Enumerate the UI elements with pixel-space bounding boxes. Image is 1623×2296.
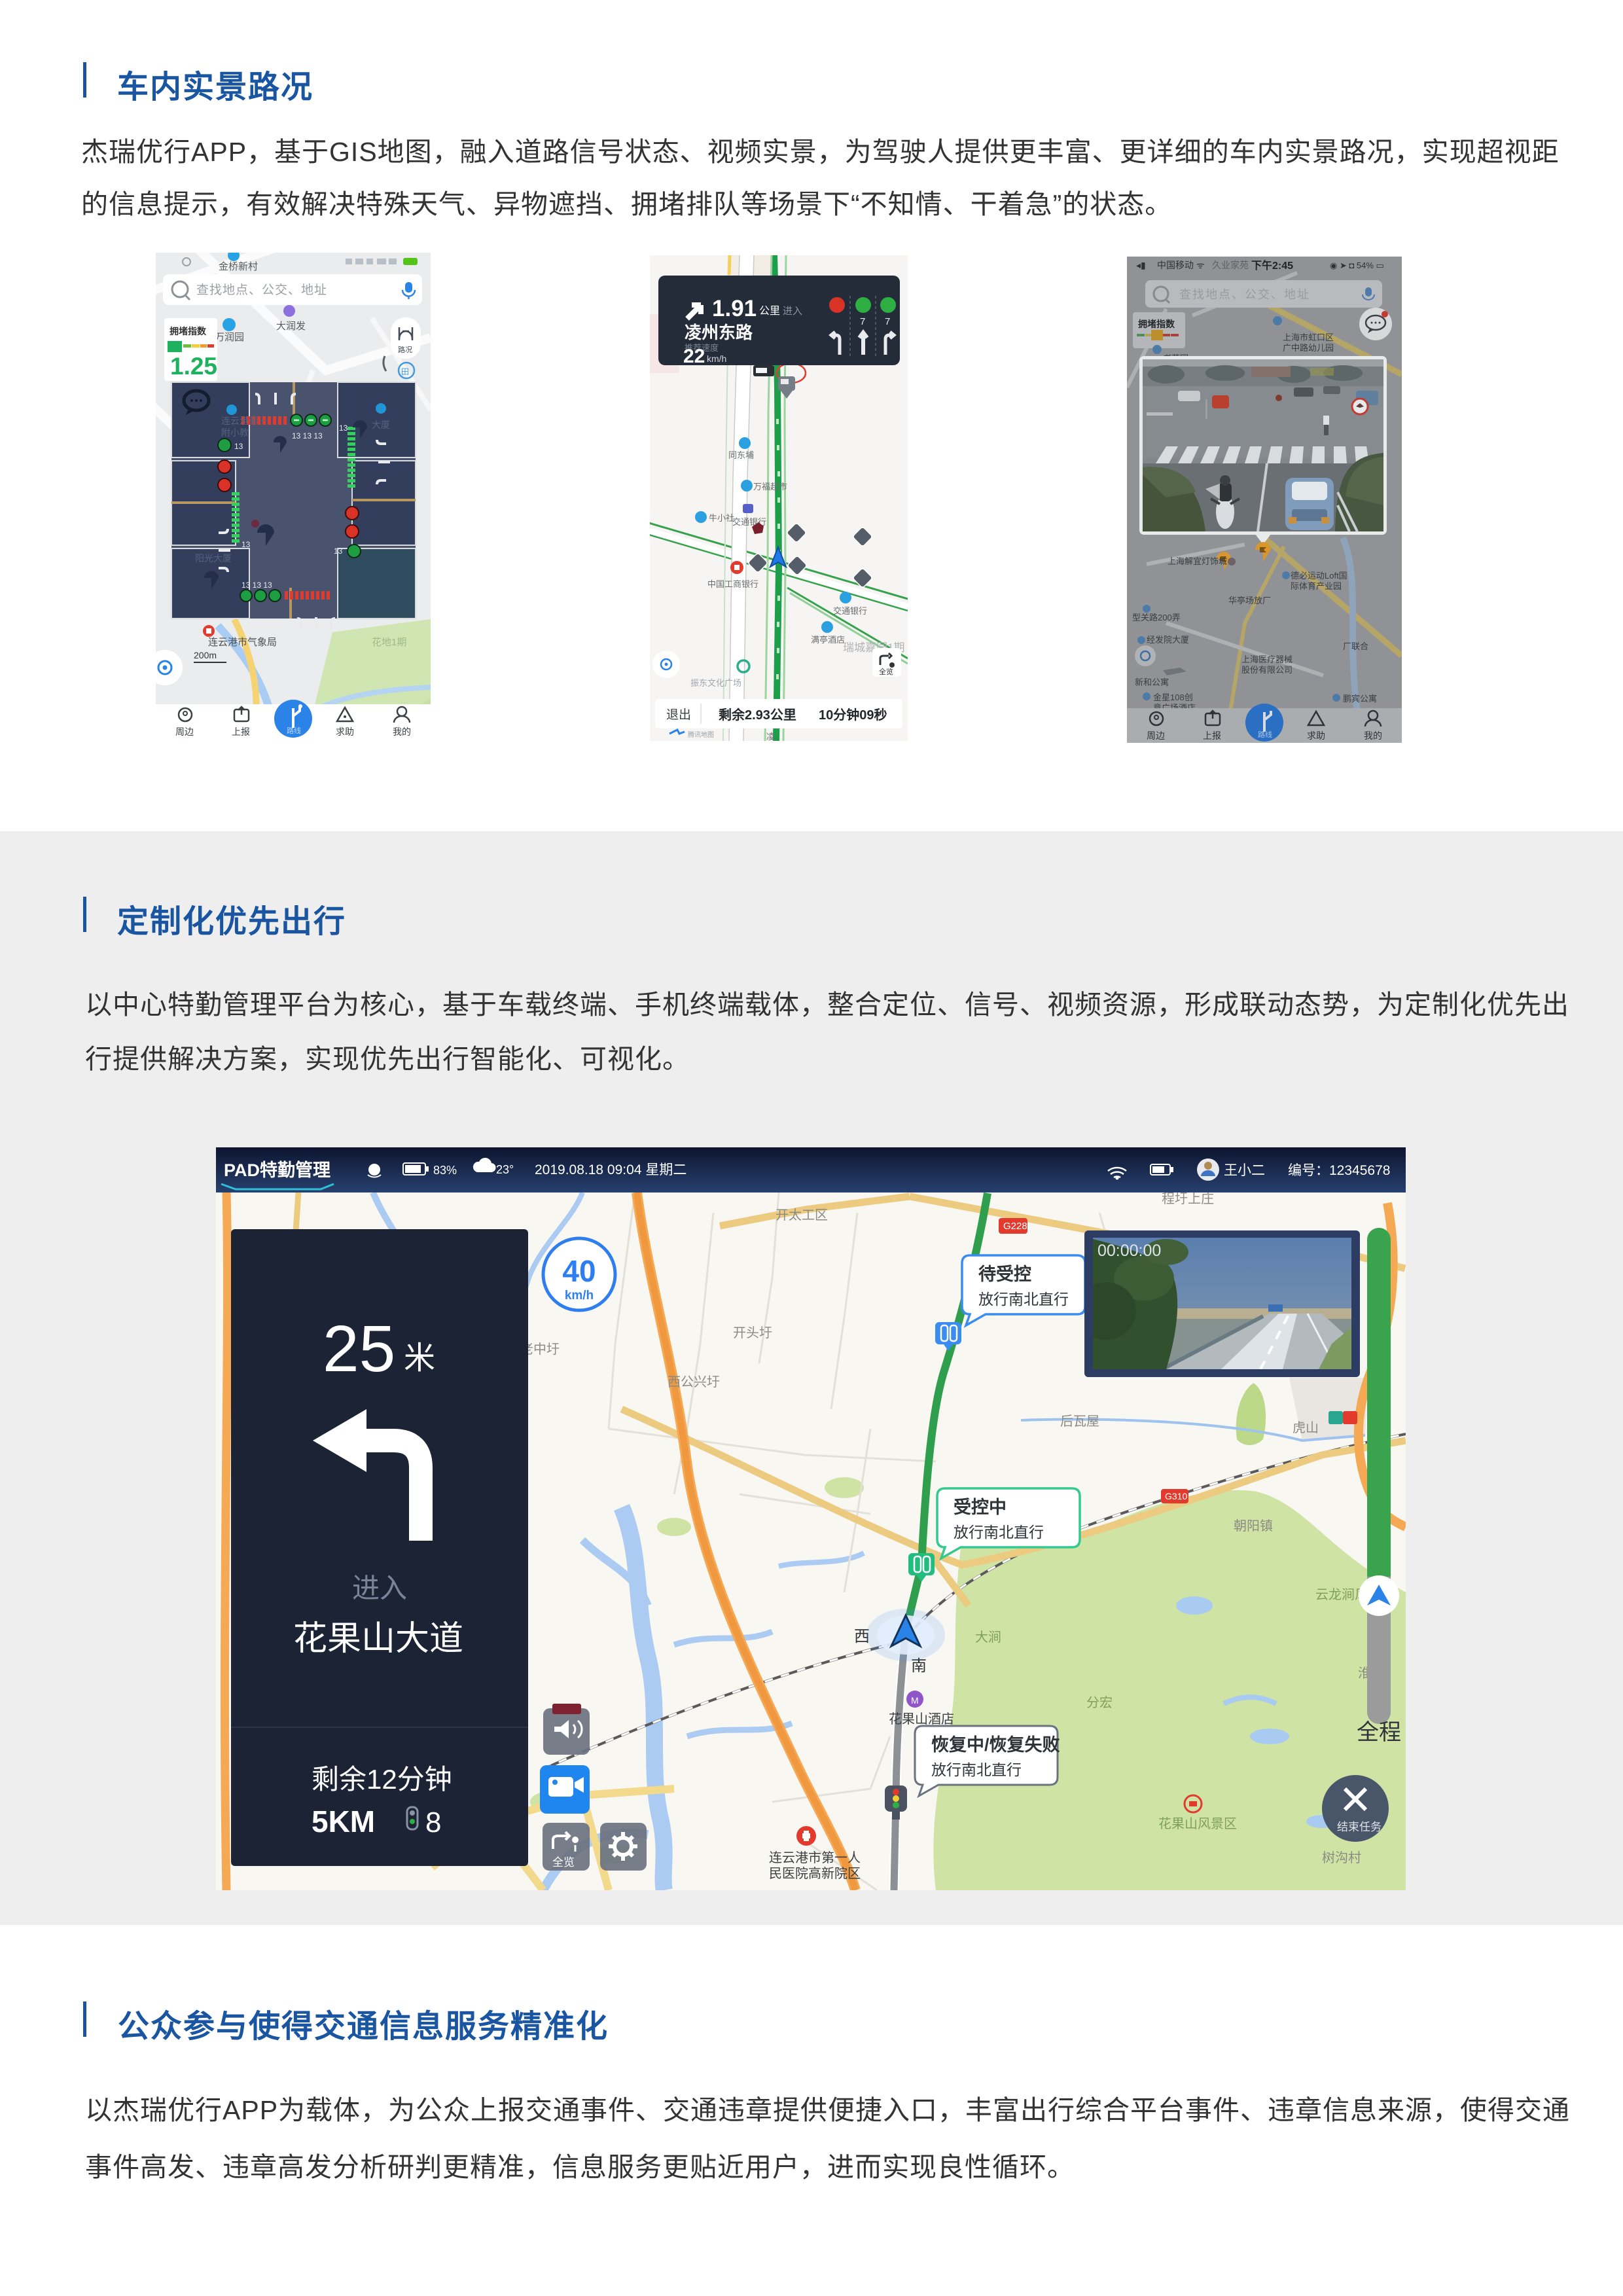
svg-text:连云港市第一人: 连云港市第一人 (769, 1850, 861, 1865)
svg-text:股份有限公司: 股份有限公司 (1241, 665, 1293, 675)
svg-text:22: 22 (683, 346, 705, 367)
svg-text:附小教: 附小教 (221, 427, 249, 438)
svg-text:10分钟09秒: 10分钟09秒 (819, 707, 887, 723)
svg-text:民医院高新院区: 民医院高新院区 (769, 1866, 861, 1881)
svg-text:进入: 进入 (352, 1573, 407, 1604)
svg-text:周边: 周边 (175, 726, 194, 737)
svg-text:牛小社: 牛小社 (709, 513, 734, 523)
svg-text:腾讯地图: 腾讯地图 (688, 730, 714, 739)
svg-text:退出: 退出 (666, 708, 691, 722)
svg-text:23°: 23° (496, 1163, 514, 1176)
svg-text:待受控: 待受控 (978, 1264, 1031, 1284)
svg-text:进入: 进入 (783, 306, 802, 317)
svg-text:放行南北直行: 放行南北直行 (954, 1524, 1044, 1541)
svg-text:际体育产业园: 际体育产业园 (1291, 581, 1342, 591)
svg-text:公里: 公里 (759, 305, 780, 317)
svg-text:田: 田 (401, 367, 409, 376)
svg-text:西公兴圩: 西公兴圩 (668, 1374, 720, 1390)
svg-text:200m: 200m (194, 650, 217, 660)
svg-text:全览: 全览 (552, 1856, 575, 1869)
svg-text:13: 13 (241, 540, 251, 549)
svg-text:花果山酒店: 花果山酒店 (889, 1712, 954, 1727)
svg-text:我的: 我的 (393, 726, 411, 737)
svg-text:◉ ➤ ◘ 54% ▭: ◉ ➤ ◘ 54% ▭ (1330, 260, 1384, 270)
svg-text:G228: G228 (1003, 1221, 1027, 1232)
svg-text:开太工区: 开太工区 (776, 1208, 828, 1223)
svg-text:经发院大厦: 经发院大厦 (1147, 635, 1189, 645)
svg-text:1.91: 1.91 (712, 296, 757, 321)
svg-text:下午2:45: 下午2:45 (1251, 259, 1293, 272)
svg-text:恢复中/恢复失败: 恢复中/恢复失败 (931, 1735, 1060, 1755)
svg-text:放行南北直行: 放行南北直行 (978, 1291, 1069, 1308)
svg-text:上海解宜灯饰城: 上海解宜灯饰城 (1168, 556, 1227, 566)
svg-text:中国工商银行: 中国工商银行 (707, 579, 758, 589)
svg-text:后瓦屋: 后瓦屋 (1060, 1414, 1099, 1429)
svg-text:83%: 83% (433, 1164, 457, 1177)
svg-text:久业家苑: 久业家苑 (1212, 260, 1249, 270)
svg-text:凌: 凌 (766, 732, 775, 741)
svg-text:M: M (911, 1695, 919, 1706)
svg-text:查找地点、公交、地址: 查找地点、公交、地址 (196, 283, 327, 297)
svg-text:00:00:00: 00:00:00 (1097, 1242, 1161, 1260)
svg-text:km/h: km/h (565, 1289, 594, 1302)
svg-text:◂▮: ◂▮ (1136, 260, 1146, 270)
svg-text:8: 8 (425, 1806, 441, 1839)
svg-text:7: 7 (860, 316, 865, 327)
svg-text:13: 13 (339, 423, 348, 433)
svg-text:13: 13 (334, 547, 343, 556)
svg-text:万润园: 万润园 (215, 332, 244, 343)
svg-text:花果山大道: 花果山大道 (293, 1620, 463, 1658)
svg-text:周边: 周边 (1147, 730, 1165, 741)
svg-text:PAD特勤管理: PAD特勤管理 (224, 1160, 330, 1180)
svg-text:华亭场放厂: 华亭场放厂 (1228, 596, 1271, 605)
svg-text:全览: 全览 (879, 667, 893, 676)
svg-text:拥堵指数: 拥堵指数 (1138, 319, 1175, 329)
svg-text:1.25: 1.25 (170, 353, 217, 380)
svg-text:金星108创: 金星108创 (1153, 692, 1193, 702)
svg-text:万福超市: 万福超市 (753, 482, 787, 492)
svg-text:凌州东路: 凌州东路 (685, 323, 753, 342)
svg-text:40: 40 (562, 1254, 596, 1288)
svg-text:全程: 全程 (1357, 1720, 1401, 1745)
svg-text:求助: 求助 (336, 726, 354, 737)
svg-text:剩余2.93公里: 剩余2.93公里 (719, 707, 796, 723)
svg-text:鹏宾公寓: 鹏宾公寓 (1343, 694, 1377, 704)
svg-text:路况: 路况 (398, 346, 412, 354)
svg-text:km/h: km/h (707, 353, 726, 364)
svg-text:大润发: 大润发 (276, 321, 306, 332)
svg-text:花果山风景区: 花果山风景区 (1158, 1816, 1237, 1831)
svg-text:受控中: 受控中 (954, 1497, 1007, 1517)
svg-text:王小二: 王小二 (1224, 1163, 1265, 1178)
svg-text:放行南北直行: 放行南北直行 (931, 1761, 1022, 1778)
svg-text:上海医疗器械: 上海医疗器械 (1241, 655, 1293, 664)
svg-text:路线: 路线 (1258, 730, 1272, 739)
svg-text:厂联合: 厂联合 (1343, 641, 1368, 651)
svg-text:7: 7 (885, 316, 890, 327)
svg-text:满亭酒店: 满亭酒店 (811, 635, 845, 645)
svg-text:2019.08.18 09:04 星期二: 2019.08.18 09:04 星期二 (535, 1162, 687, 1177)
svg-text:编号：12345678: 编号：12345678 (1288, 1163, 1390, 1178)
svg-text:大涧: 大涧 (975, 1630, 1001, 1645)
svg-text:德必运动Loft国: 德必运动Loft国 (1291, 571, 1347, 581)
svg-text:分宏: 分宏 (1086, 1695, 1113, 1710)
svg-text:G310: G310 (1165, 1491, 1187, 1501)
svg-text:结束任务: 结束任务 (1337, 1821, 1382, 1833)
svg-text:上报: 上报 (1203, 730, 1221, 741)
svg-text:13 13 13: 13 13 13 (292, 431, 323, 440)
svg-text:交通银行: 交通银行 (833, 606, 867, 616)
svg-text:5KM: 5KM (312, 1804, 375, 1839)
svg-text:13 13 13: 13 13 13 (241, 581, 272, 590)
svg-text:我的: 我的 (1364, 730, 1382, 741)
svg-text:拥堵指数: 拥堵指数 (169, 326, 207, 336)
svg-text:阳光大厦: 阳光大厦 (195, 553, 232, 564)
svg-text:路线: 路线 (287, 726, 301, 735)
svg-text:查找地点、公交、地址: 查找地点、公交、地址 (1179, 288, 1310, 301)
svg-text:程圩上庄: 程圩上庄 (1162, 1191, 1214, 1206)
svg-text:连云港市气象局: 连云港市气象局 (208, 637, 277, 648)
svg-text:求助: 求助 (1307, 730, 1325, 741)
svg-text:金桥新村: 金桥新村 (219, 261, 258, 272)
svg-text:花地1期: 花地1期 (372, 637, 406, 648)
svg-text:同东埔: 同东埔 (728, 450, 754, 460)
svg-text:朝阳镇: 朝阳镇 (1234, 1518, 1273, 1534)
svg-text:上海市虹口区: 上海市虹口区 (1283, 332, 1334, 342)
svg-text:13: 13 (234, 442, 243, 451)
svg-text:上报: 上报 (232, 726, 250, 737)
svg-text:树沟村: 树沟村 (1322, 1850, 1361, 1865)
svg-text:大厦: 大厦 (372, 420, 390, 430)
svg-text:新和公寓: 新和公寓 (1135, 677, 1169, 687)
svg-text:剩余12分钟: 剩余12分钟 (312, 1764, 452, 1795)
svg-text:振东文化广场: 振东文化广场 (690, 678, 741, 688)
svg-text:25: 25 (323, 1312, 395, 1386)
svg-text:中国移动 ᯤ: 中国移动 ᯤ (1157, 260, 1205, 270)
svg-text:虎山: 虎山 (1293, 1420, 1319, 1435)
svg-text:米: 米 (404, 1341, 435, 1376)
svg-text:型关路200弄: 型关路200弄 (1132, 613, 1181, 622)
svg-text:广中路幼儿园: 广中路幼儿园 (1283, 343, 1334, 353)
svg-text:连云港第一: 连云港第一 (221, 416, 267, 426)
svg-text:开头圩: 开头圩 (733, 1325, 772, 1340)
